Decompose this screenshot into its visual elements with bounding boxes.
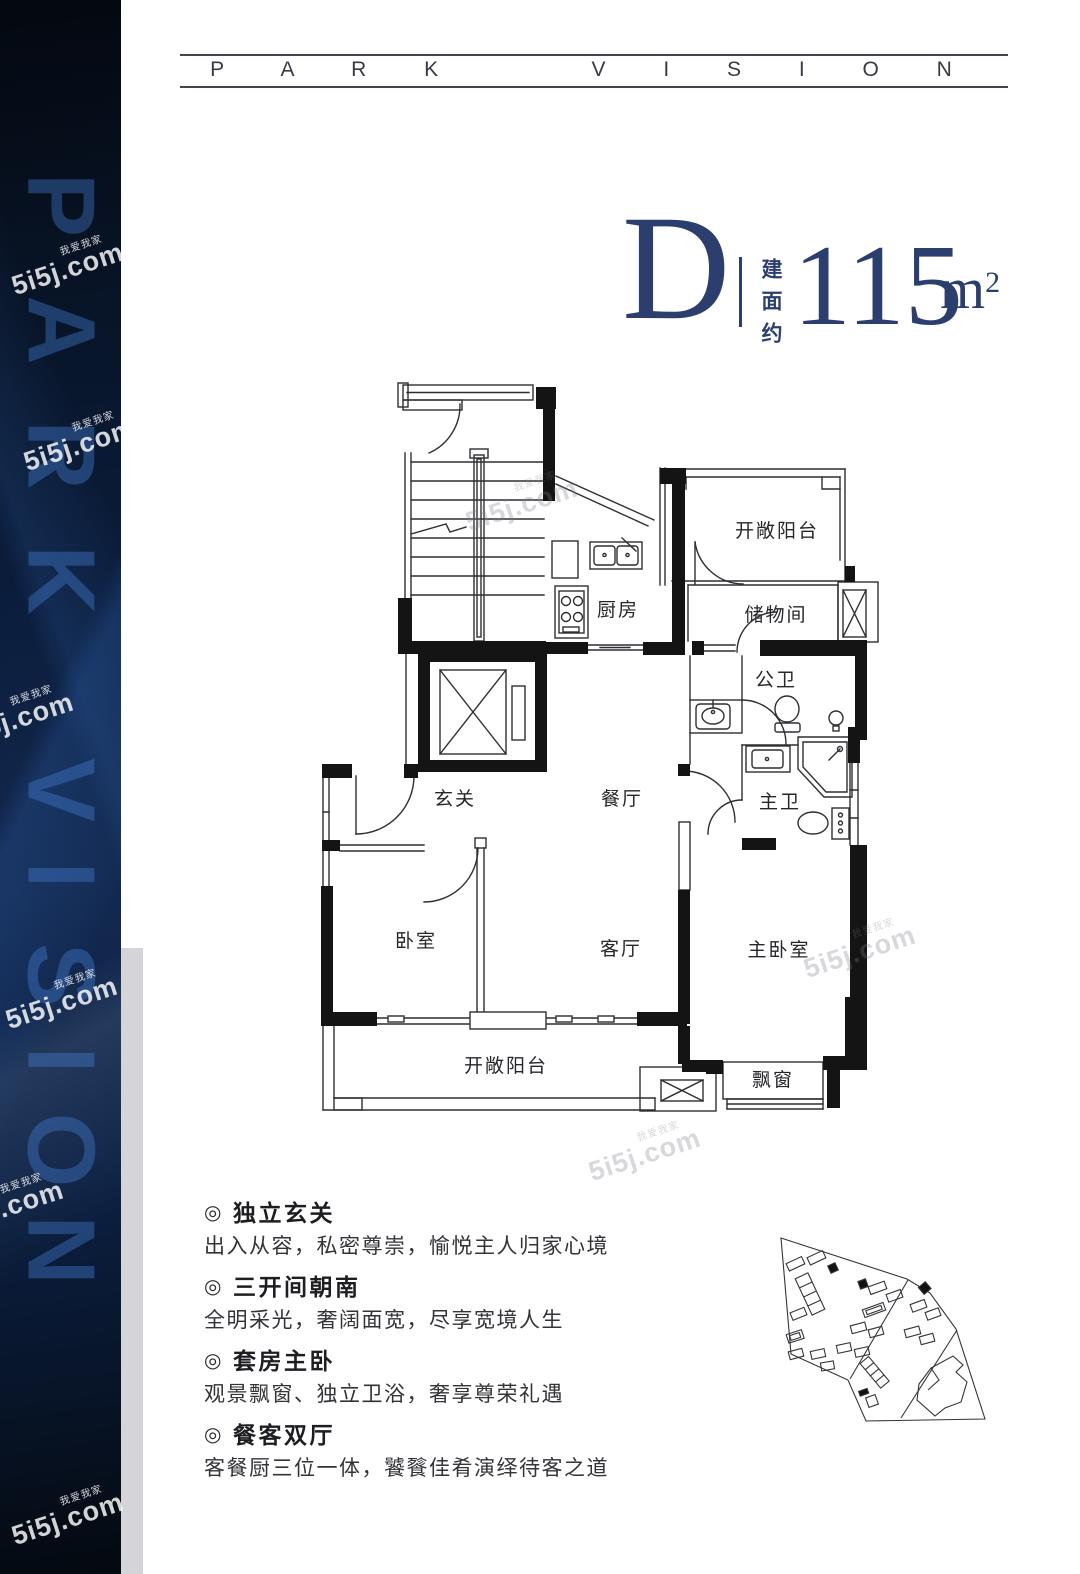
room-label-foyer: 玄关 bbox=[434, 788, 476, 810]
walls bbox=[321, 387, 867, 1108]
bathtub-icon bbox=[798, 737, 852, 797]
unit-sup: 2 bbox=[985, 266, 1000, 299]
room-label-public-bath: 公卫 bbox=[755, 670, 797, 691]
kitchen-fixtures bbox=[552, 468, 665, 650]
ac-platform bbox=[640, 1067, 716, 1111]
washbasin-icon bbox=[696, 700, 730, 729]
band-letter: K bbox=[13, 520, 109, 641]
bedroom-living-walls bbox=[340, 771, 735, 1012]
floor-plan: 开敞阳台 厨房 储物间 公卫 玄关 餐厅 主卫 卧室 客厅 主卧室 开敞阳台 飘… bbox=[300, 360, 880, 1130]
bullet-ring-icon: ◎ bbox=[204, 1200, 224, 1227]
bullet-ring-icon: ◎ bbox=[204, 1274, 224, 1301]
band-letter: R bbox=[13, 395, 109, 516]
room-label-master-bath: 主卫 bbox=[759, 791, 801, 813]
bullet-ring-icon: ◎ bbox=[204, 1422, 224, 1449]
feature-item: ◎ 餐客双厅 客餐厨三位一体，饕餮佳肴演绎待客之道 bbox=[204, 1422, 674, 1483]
feature-title: ◎ 套房主卧 bbox=[204, 1348, 674, 1375]
foyer-walls bbox=[323, 776, 414, 886]
feature-list: ◎ 独立玄关 出入从容，私密尊崇，愉悦主人归家心境 ◎ 三开间朝南 全明采光，奢… bbox=[204, 1200, 674, 1496]
room-label-dining: 餐厅 bbox=[601, 788, 643, 810]
room-label-master-bedroom: 主卧室 bbox=[747, 939, 810, 961]
unit-m: m bbox=[940, 256, 985, 321]
elevator bbox=[440, 670, 525, 754]
feature-title-text: 餐客双厅 bbox=[233, 1422, 335, 1449]
vanity-icon bbox=[746, 746, 790, 772]
feature-item: ◎ 三开间朝南 全明采光，奢阔面宽，尽享宽境人生 bbox=[204, 1274, 674, 1335]
room-label-balcony-top: 开敞阳台 bbox=[735, 520, 819, 542]
master-bathroom bbox=[708, 737, 858, 845]
sink-icon bbox=[594, 546, 615, 565]
lamp-icon bbox=[829, 711, 843, 731]
header-rule-bottom bbox=[180, 86, 1008, 88]
feature-title: ◎ 独立玄关 bbox=[204, 1200, 674, 1227]
feature-title: ◎ 三开间朝南 bbox=[204, 1274, 674, 1301]
gray-edge-strip bbox=[121, 948, 143, 1574]
room-label-balcony-bottom: 开敞阳台 bbox=[464, 1055, 548, 1077]
room-label-bedroom: 卧室 bbox=[395, 930, 437, 952]
sink-icon bbox=[617, 546, 638, 565]
highlight-building bbox=[917, 1356, 967, 1416]
watermark-main: 5i5j.com bbox=[585, 1123, 705, 1187]
floorplan-poster: P A R K V I S I O N P A R K V I S I O N … bbox=[0, 0, 1080, 1574]
room-label-storage: 储物间 bbox=[744, 604, 807, 626]
feature-item: ◎ 独立玄关 出入从容，私密尊崇，愉悦主人归家心境 bbox=[204, 1200, 674, 1261]
brand-title: P A R K V I S I O N bbox=[180, 58, 1008, 82]
left-brand-band: P A R K V I S I O N bbox=[0, 0, 121, 1574]
feature-desc: 全明采光，奢阔面宽，尽享宽境人生 bbox=[204, 1307, 674, 1335]
feature-title: ◎ 餐客双厅 bbox=[204, 1422, 674, 1449]
room-label-kitchen: 厨房 bbox=[597, 599, 639, 621]
site-plan bbox=[763, 1232, 1015, 1458]
unit-code: D bbox=[622, 193, 730, 343]
band-letter: N bbox=[13, 1190, 109, 1311]
feature-title-text: 套房主卧 bbox=[233, 1348, 335, 1375]
feature-desc: 客餐厨三位一体，饕餮佳肴演绎待客之道 bbox=[204, 1455, 674, 1483]
feature-title-text: 三开间朝南 bbox=[233, 1274, 361, 1301]
elevator-shaft-right bbox=[838, 582, 878, 642]
feature-item: ◎ 套房主卧 观景飘窗、独立卫浴，奢享尊荣礼遇 bbox=[204, 1348, 674, 1409]
area-value: 115 bbox=[793, 228, 963, 344]
band-letter: A bbox=[13, 270, 109, 391]
toilet-icon bbox=[775, 696, 800, 732]
room-label-living: 客厅 bbox=[600, 938, 642, 960]
stove-icon bbox=[555, 586, 588, 638]
bullet-ring-icon: ◎ bbox=[204, 1348, 224, 1375]
feature-desc: 观景飘窗、独立卫浴，奢享尊荣礼遇 bbox=[204, 1381, 674, 1409]
room-label-bay-window: 飘窗 bbox=[752, 1069, 794, 1091]
toilet-icon bbox=[798, 808, 849, 839]
area-unit: m2 bbox=[940, 260, 1000, 318]
feature-desc: 出入从容，私密尊崇，愉悦主人归家心境 bbox=[204, 1233, 674, 1261]
band-letter: P bbox=[13, 145, 109, 266]
area-prefix: 建面约 bbox=[755, 258, 785, 354]
feature-title-text: 独立玄关 bbox=[233, 1200, 335, 1227]
header-rule-top bbox=[180, 54, 1008, 56]
title-divider bbox=[739, 257, 742, 327]
